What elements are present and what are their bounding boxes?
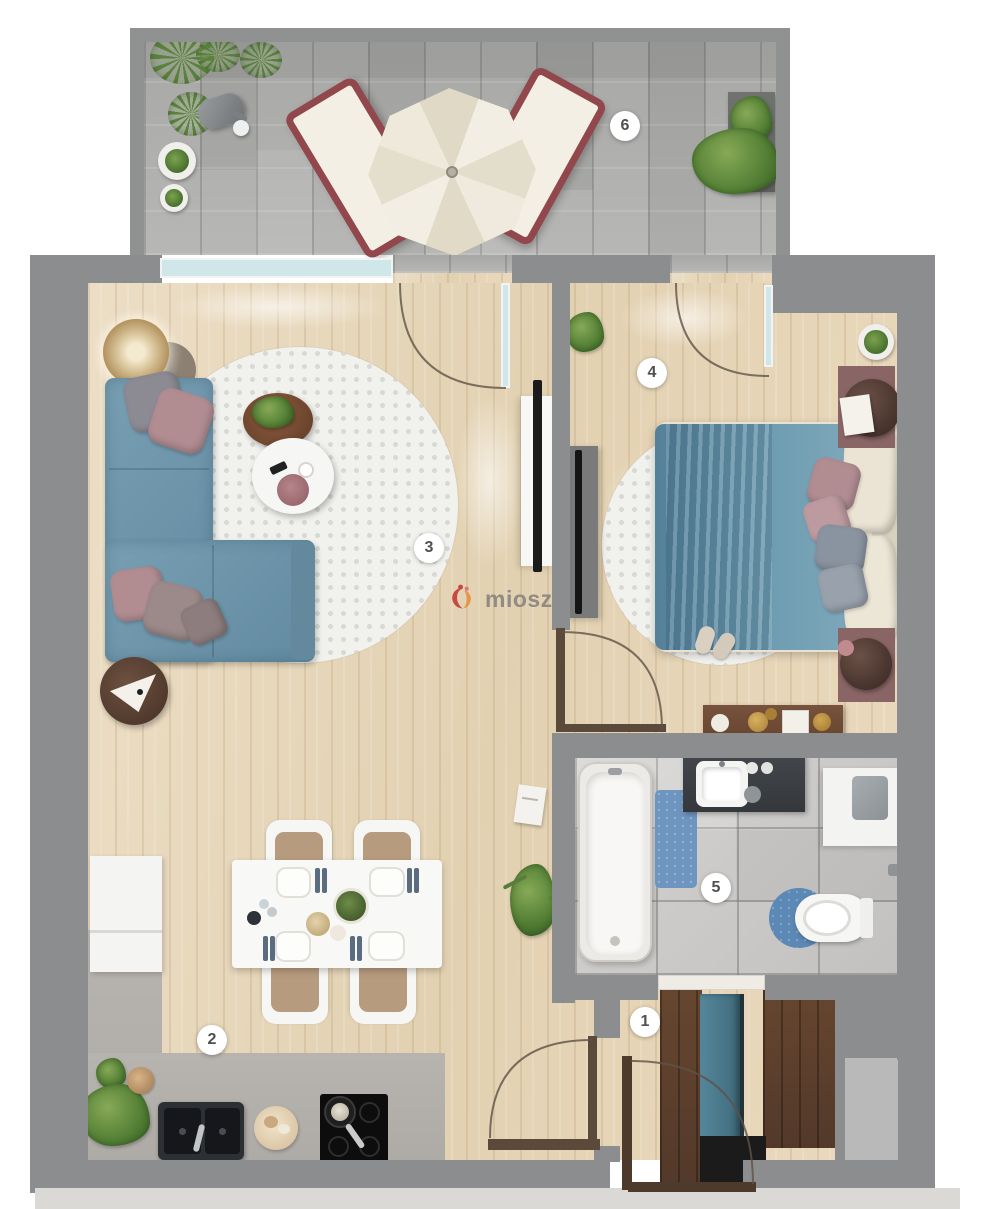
food-plate: [254, 1106, 298, 1150]
console-gold-bowl: [813, 713, 831, 731]
living-room-floor-plant: [510, 864, 556, 936]
terrace-wall-left: [130, 28, 144, 258]
entry-door-panel: [622, 1056, 632, 1190]
hall-door-panel: [588, 1036, 597, 1144]
terrace-wall-right: [776, 28, 790, 270]
floor-plan: 1 2 3 4 5 6 miosz: [0, 0, 1000, 1209]
cutlery: [350, 936, 355, 961]
room-marker-hallway: 1: [630, 1007, 660, 1037]
toilet-seat: [803, 900, 851, 936]
burner: [359, 1102, 380, 1123]
wall-divider-living-bedroom: [552, 283, 570, 630]
room-marker-terrace: 6: [610, 111, 640, 141]
lounge-chair-dot: [137, 689, 143, 695]
bedroom-tv: [575, 450, 582, 614]
room-marker-bedroom: 4: [637, 358, 667, 388]
wine-bottle: [247, 911, 261, 925]
hall-door-threshold: [488, 1139, 600, 1150]
wardrobe-side-panel: [660, 990, 702, 1186]
pan-contents: [331, 1103, 349, 1121]
terrace-door-floor: [393, 273, 512, 283]
room-number: 3: [425, 539, 434, 557]
pink-dish: [838, 640, 854, 656]
washing-machine: [852, 776, 888, 820]
terrace-glass-door: [501, 283, 510, 388]
entry-door-threshold: [628, 1182, 756, 1192]
cutlery: [357, 936, 362, 961]
cutlery: [263, 936, 268, 961]
room-number: 2: [208, 1031, 217, 1049]
room-marker-kitchen-dining: 2: [197, 1025, 227, 1055]
bedroom-door-threshold: [556, 724, 666, 732]
sink-drain: [179, 1128, 186, 1135]
dinner-plate: [276, 867, 311, 898]
bathtub-drain: [610, 936, 620, 946]
entry-dark-wood-floor: [763, 985, 838, 1148]
cutlery: [315, 868, 320, 893]
balcony-door-light: [620, 288, 750, 348]
living-room-tv: [533, 380, 542, 572]
cutlery: [407, 868, 412, 893]
dinner-plate: [368, 931, 405, 961]
kitchen-tall-cabinet: [90, 856, 162, 972]
bed-blanket-drape: [666, 424, 772, 650]
bathtub-basin: [586, 772, 644, 954]
terrace-door-threshold: [393, 255, 512, 273]
balcony-door-floor: [670, 273, 772, 283]
room-marker-bathroom: 5: [701, 873, 731, 903]
room-number: 6: [621, 117, 630, 135]
room-marker-living-room: 3: [414, 533, 444, 563]
planter-box-plant: [692, 128, 780, 194]
cutlery: [270, 936, 275, 961]
balcony-glass-door: [764, 285, 773, 367]
cutlery: [322, 868, 327, 893]
dinner-plate: [369, 867, 405, 897]
bottom-edge-strip: [35, 1188, 960, 1209]
miosz-logo-icon: [445, 582, 479, 616]
wall-bathroom-bottom-left: [552, 975, 658, 1000]
window-light: [168, 285, 388, 329]
bedroom-door-panel: [556, 628, 565, 732]
terrace-grass-plant: [196, 38, 240, 72]
wall-top-middle: [512, 255, 670, 283]
magazine: [513, 784, 546, 826]
side-dish: [330, 925, 346, 941]
wine-glass: [267, 907, 277, 917]
wall-bathroom-bottom-right: [765, 975, 897, 1000]
terrace-planter-bowl: [158, 142, 196, 180]
wall-right: [897, 283, 935, 1060]
watering-can-rose: [233, 120, 249, 136]
sink-faucet: [719, 761, 725, 767]
food-item: [278, 1124, 290, 1134]
wood-bowl: [127, 1067, 154, 1094]
console-candle: [711, 714, 729, 732]
bedroom-plant: [566, 312, 604, 352]
coffee-table-plant: [252, 396, 294, 428]
room-number: 5: [712, 879, 721, 897]
terrace-grass-plant: [240, 42, 282, 78]
living-room-window: [160, 258, 393, 278]
bedroom-plant-bowl: [858, 324, 894, 360]
entry-landing-inset: [845, 1058, 898, 1170]
bathtub-faucet: [608, 768, 622, 775]
bathroom-door: [658, 975, 765, 990]
bathroom-sink-basin: [702, 767, 742, 801]
watermark-text: miosz: [485, 586, 553, 613]
watermark: miosz: [445, 582, 553, 616]
notebook: [840, 394, 875, 436]
terrace-tile-shade: [256, 150, 312, 255]
terrace-planter-bowl: [160, 184, 188, 212]
terrace-wall-top: [130, 28, 790, 42]
console-gold-bottle: [765, 708, 777, 720]
bread-bowl: [306, 912, 330, 936]
room-number: 4: [648, 364, 657, 382]
room-number: 1: [641, 1013, 650, 1031]
balcony-door-threshold: [670, 255, 772, 273]
toilet-cistern: [860, 898, 873, 938]
kitchen-cabinet-seam: [90, 930, 162, 933]
wall-bathroom-top: [552, 733, 897, 758]
cutlery: [414, 868, 419, 893]
sofa-armrest: [291, 542, 315, 660]
food-item: [264, 1116, 278, 1128]
vanity-round-tray: [744, 786, 761, 803]
vanity-item: [746, 762, 758, 774]
wall-left: [30, 255, 88, 1188]
tv-wall-light: [455, 392, 525, 567]
serving-plate: [277, 474, 309, 506]
salad-bowl: [333, 888, 369, 924]
vanity-item: [761, 762, 773, 774]
burner: [328, 1136, 349, 1157]
sink-drain: [219, 1128, 226, 1135]
wall-bathroom-left: [552, 733, 575, 1003]
dinner-plate: [275, 931, 311, 962]
umbrella-pole: [446, 166, 458, 178]
wall-hall-stub-top: [594, 1000, 620, 1038]
